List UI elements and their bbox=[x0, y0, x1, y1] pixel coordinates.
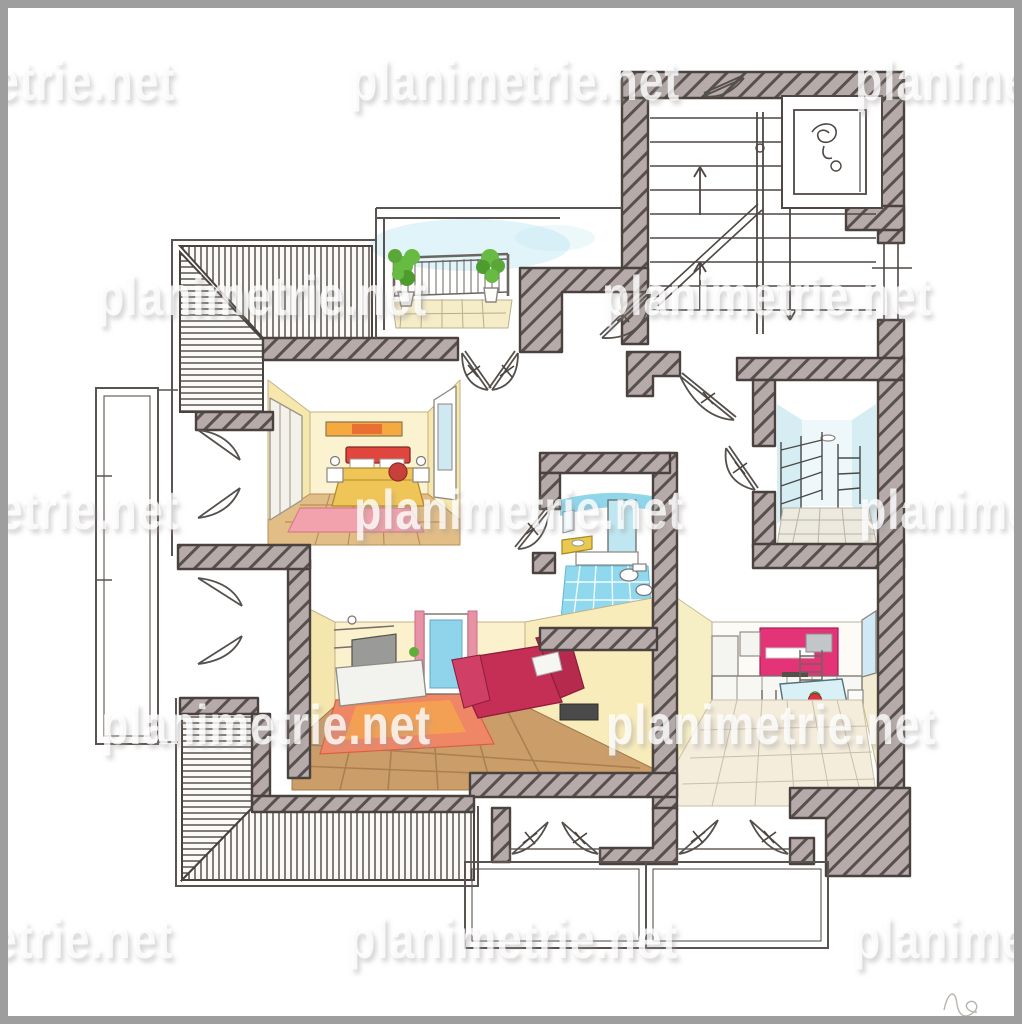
watermark-text: planimetrie.net bbox=[354, 478, 684, 541]
watermark-text: planimetrie.net bbox=[348, 907, 678, 970]
cooktop bbox=[782, 672, 808, 677]
artist-signature bbox=[944, 994, 977, 1016]
watermark-text: planimetrie.net bbox=[0, 907, 173, 970]
cooker-hood bbox=[806, 634, 832, 652]
watermark-text: planimetrie.net bbox=[101, 693, 431, 756]
watermark-text: planimetrie.net bbox=[602, 264, 932, 327]
watermark-text: planimetrie.net bbox=[0, 478, 179, 541]
coffee-bench bbox=[560, 704, 598, 720]
ceiling-lamp bbox=[821, 435, 835, 441]
side-balcony bbox=[96, 388, 158, 744]
nightstand-left bbox=[327, 468, 343, 482]
elevator bbox=[782, 96, 882, 208]
watermark-text: planimetrie.net bbox=[859, 478, 1022, 541]
watermark-text: planimetrie.net bbox=[853, 907, 1022, 970]
floorplan-image: planimetrie.netplanimetrie.netplanimetri… bbox=[0, 0, 1022, 1024]
watermark-text: planimetrie.net bbox=[0, 49, 175, 112]
bidet bbox=[636, 585, 652, 596]
kitchen-window bbox=[862, 611, 876, 677]
bathtub bbox=[576, 552, 638, 565]
watermark-text: planimetrie.net bbox=[350, 49, 680, 112]
small-plant bbox=[409, 647, 419, 657]
watermark-text: planimetrie.net bbox=[97, 264, 427, 327]
lamp-left bbox=[331, 457, 340, 466]
watermark-text: planimetrie.net bbox=[855, 49, 1022, 112]
watermark-text: planimetrie.net bbox=[606, 693, 936, 756]
wardrobe bbox=[270, 398, 302, 520]
lamp-right bbox=[417, 457, 426, 466]
